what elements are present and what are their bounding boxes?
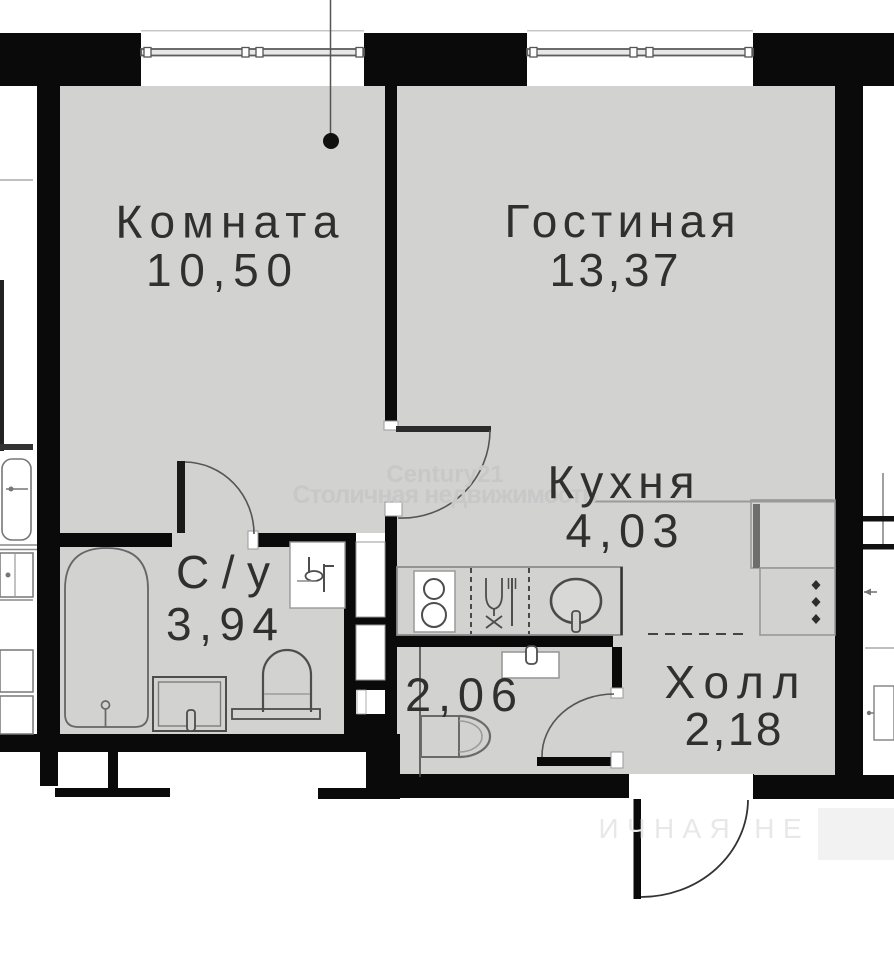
svg-text:Комната: Комната <box>116 196 339 248</box>
svg-text:3,94: 3,94 <box>166 598 278 650</box>
svg-text:ИЧНАЯ НЕ: ИЧНАЯ НЕ <box>599 813 802 844</box>
svg-text:С/у: С/у <box>176 546 270 598</box>
svg-text:13,37: 13,37 <box>550 244 679 296</box>
svg-text:Гостиная: Гостиная <box>505 195 736 247</box>
svg-text:4,03: 4,03 <box>566 504 679 557</box>
svg-text:10,50: 10,50 <box>146 244 292 296</box>
svg-text:2,06: 2,06 <box>405 668 517 721</box>
svg-text:Кухня: Кухня <box>548 456 695 508</box>
svg-text:2,18: 2,18 <box>685 703 782 755</box>
